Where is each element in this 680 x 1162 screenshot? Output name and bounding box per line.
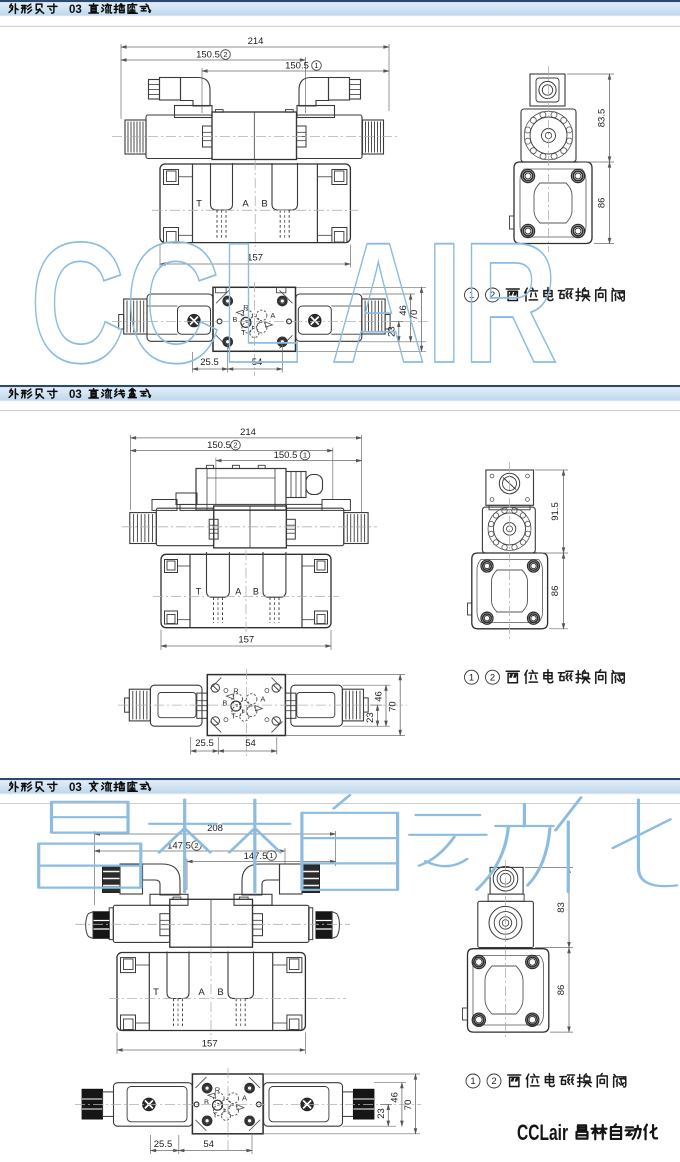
svg-text:03: 03 xyxy=(69,4,82,16)
svg-text:25.5: 25.5 xyxy=(195,738,214,749)
svg-text:CCLair: CCLair xyxy=(517,1120,568,1145)
svg-text:T: T xyxy=(213,1111,218,1120)
svg-text:03: 03 xyxy=(69,389,82,401)
svg-text:70: 70 xyxy=(388,701,399,712)
svg-text:B: B xyxy=(217,987,223,998)
svg-text:86: 86 xyxy=(550,586,561,597)
svg-text:2: 2 xyxy=(491,1076,496,1087)
svg-text:2: 2 xyxy=(223,50,227,59)
svg-text:157: 157 xyxy=(202,1039,218,1050)
svg-text:A: A xyxy=(260,695,265,704)
svg-text:214: 214 xyxy=(240,427,256,438)
svg-text:B: B xyxy=(222,699,227,708)
svg-text:B: B xyxy=(204,1098,209,1107)
svg-text:214: 214 xyxy=(248,36,264,47)
svg-text:1: 1 xyxy=(303,451,307,460)
svg-text:70: 70 xyxy=(403,1100,414,1111)
svg-text:A: A xyxy=(235,587,241,597)
svg-text:23: 23 xyxy=(365,712,376,723)
svg-text:150.5: 150.5 xyxy=(285,61,309,72)
svg-text:91.5: 91.5 xyxy=(550,502,561,521)
svg-text:2: 2 xyxy=(490,672,495,683)
svg-text:150.5: 150.5 xyxy=(274,450,298,461)
svg-text:2: 2 xyxy=(233,441,237,450)
svg-text:A: A xyxy=(242,1094,247,1103)
svg-text:157: 157 xyxy=(238,635,254,646)
svg-text:86: 86 xyxy=(556,985,567,996)
svg-text:54: 54 xyxy=(203,1139,214,1150)
svg-text:86: 86 xyxy=(596,198,607,209)
svg-text:T: T xyxy=(196,587,202,597)
svg-text:R: R xyxy=(215,1086,221,1095)
svg-text:T: T xyxy=(231,712,236,721)
svg-text:CCL AIR: CCL AIR xyxy=(30,207,558,399)
svg-text:03: 03 xyxy=(69,782,82,794)
svg-text:1: 1 xyxy=(470,1076,475,1087)
svg-text:1: 1 xyxy=(269,851,273,860)
svg-text:83.5: 83.5 xyxy=(596,109,607,128)
svg-text:23: 23 xyxy=(376,1108,387,1119)
svg-text:54: 54 xyxy=(245,738,256,749)
svg-text:25.5: 25.5 xyxy=(154,1139,173,1150)
svg-text:R: R xyxy=(233,687,239,696)
svg-text:1: 1 xyxy=(314,61,318,70)
svg-text:46: 46 xyxy=(389,1092,400,1103)
svg-text:T: T xyxy=(153,987,159,998)
svg-text:A: A xyxy=(198,987,205,998)
svg-text:150.5: 150.5 xyxy=(196,50,220,61)
svg-text:1: 1 xyxy=(469,672,474,683)
svg-text:46: 46 xyxy=(374,691,385,702)
svg-text:B: B xyxy=(253,587,259,597)
svg-text:83: 83 xyxy=(556,902,567,913)
svg-text:150.5: 150.5 xyxy=(207,440,231,451)
